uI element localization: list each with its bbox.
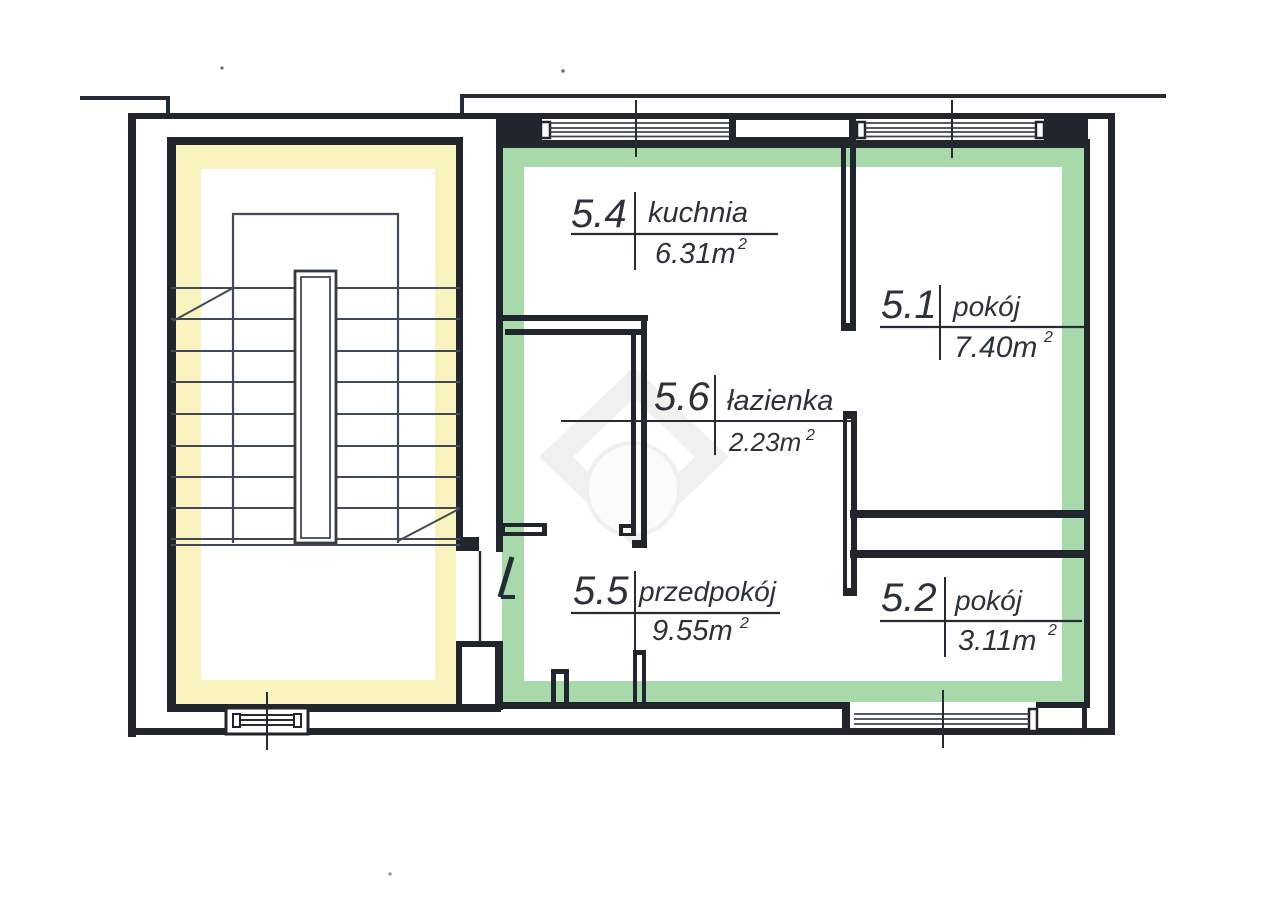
svg-text:2: 2	[805, 427, 815, 444]
svg-text:2: 2	[1043, 329, 1053, 346]
svg-text:5.1: 5.1	[881, 283, 937, 327]
svg-text:3.11m: 3.11m	[958, 625, 1036, 657]
svg-text:2: 2	[737, 236, 747, 253]
svg-text:5.2: 5.2	[881, 576, 937, 620]
svg-text:5.5: 5.5	[573, 569, 629, 613]
svg-text:2: 2	[739, 615, 749, 632]
svg-text:5.6: 5.6	[654, 375, 710, 419]
svg-text:5.4: 5.4	[571, 192, 627, 236]
svg-text:kuchnia: kuchnia	[648, 197, 748, 229]
svg-text:przedpokój: przedpokój	[638, 576, 777, 607]
svg-text:9.55m: 9.55m	[652, 615, 733, 647]
svg-text:6.31m: 6.31m	[655, 238, 736, 270]
svg-text:łazienka: łazienka	[727, 385, 833, 417]
svg-text:pokój: pokój	[952, 291, 1021, 322]
svg-text:2: 2	[1047, 622, 1057, 639]
svg-text:7.40m: 7.40m	[954, 331, 1037, 364]
svg-text:2.23m: 2.23m	[728, 427, 801, 457]
svg-text:pokój: pokój	[954, 585, 1023, 616]
